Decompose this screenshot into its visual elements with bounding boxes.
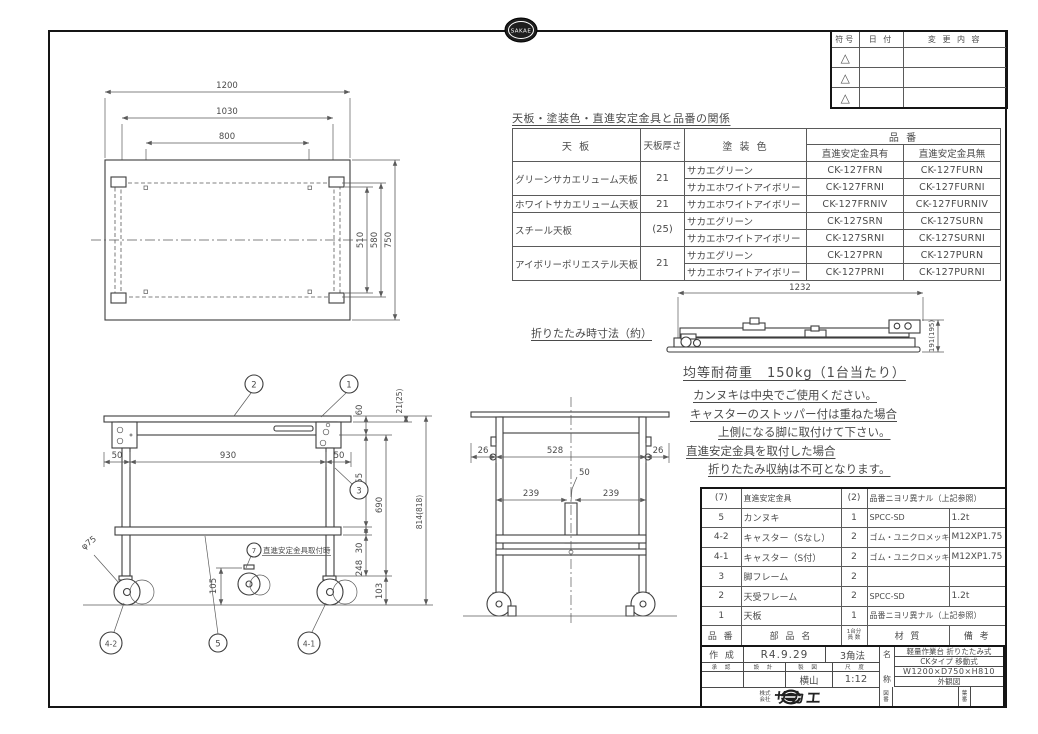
drawing-number-label: 図番 (880, 687, 893, 706)
revision-triangle-icon: △ (831, 68, 859, 88)
dim-50-slot: 50 (579, 468, 590, 478)
dim-26-left: 26 (478, 446, 489, 456)
sakae-emblem: SAKAE (502, 16, 540, 46)
product-size-line: W1200×D750×H810 (895, 667, 1003, 677)
dim-814-818: 814(818) (415, 495, 424, 530)
svg-text:2: 2 (251, 381, 256, 391)
balloon-3: 3 (335, 468, 368, 499)
note-line: 直進安定金具を取付した場合 (686, 442, 1013, 461)
drawing-scale: 1:12 (833, 672, 880, 687)
dim-239-right: 239 (603, 489, 619, 499)
col-without-bracket: 直進安定金具無 (904, 145, 1001, 162)
created-label: 作 成 (702, 647, 744, 663)
svg-text:7: 7 (252, 547, 256, 555)
part-number-relation-table: 天 板 天板厚さ 塗 装 色 品 番 直進安定金具有 直進安定金具無 グリーンサ… (512, 128, 1001, 281)
table-row: (7) 直進安定金具 (2) 品番ニヨリ異ナル（上記参照） (701, 488, 1006, 508)
col-remarks: 備 考 (949, 626, 1006, 646)
company-prefix: 株式 会社 (759, 691, 770, 703)
dim-248: 248 (355, 560, 365, 576)
svg-text:4-1: 4-1 (303, 640, 315, 649)
svg-text:1: 1 (346, 381, 351, 391)
svg-text:3: 3 (356, 487, 361, 497)
sheet-number-label: 葉番 (959, 687, 971, 706)
col-part-name: 部 品 名 (741, 626, 841, 646)
dim-800: 800 (219, 132, 235, 142)
name-label: 名称 (880, 647, 895, 687)
dim-60: 60 (355, 405, 365, 416)
revision-triangle-icon: △ (831, 88, 859, 109)
note-line: キャスターのストッパー付は重ねた場合 (690, 405, 1013, 424)
balloon-4-1: 4-1 (298, 603, 326, 654)
dim-105: 105 (209, 578, 219, 594)
relation-table-title: 天板・塗装色・直進安定金具と品番の関係 (512, 110, 731, 126)
revision-triangle-icon: △ (831, 48, 859, 68)
table-row: 3 脚フレーム 2 (701, 567, 1006, 587)
revision-header: 符号 日 付 変 更 内 容 (831, 31, 1007, 48)
dim-50-left: 50 (112, 451, 123, 461)
col-top: 天 板 (513, 129, 641, 162)
col-color: 塗 装 色 (685, 129, 807, 162)
drafter-name: 横山 (786, 672, 833, 687)
table-row: スチール天板 (25) サカエグリーン CK-127SRN CK-127SURN (513, 213, 1001, 230)
col-part-no: 品 番 (701, 626, 741, 646)
table-row: △ (831, 68, 1007, 88)
svg-text:4-2: 4-2 (105, 640, 117, 649)
dim-30: 30 (355, 543, 365, 554)
load-capacity-note: 均等耐荷重 150kg（1台当たり） (683, 362, 1013, 381)
dim-21-25: 21(25) (395, 388, 404, 413)
note-line: 折りたたみ収納は不可となります。 (708, 460, 1013, 479)
table-row: ホワイトサカエリューム天板 21 サカエホワイトアイボリー CK-127FRNI… (513, 196, 1001, 213)
dim-750: 750 (384, 232, 394, 248)
parts-header: 品 番 部 品 名 1台分 員 数 材 質 備 考 (701, 626, 1006, 646)
dim-239-left: 239 (523, 489, 539, 499)
balloon-1: 1 (321, 375, 358, 417)
top-view-drawing: 1200 1030 800 510 580 750 (55, 72, 400, 337)
company-name: サカエ (772, 687, 822, 706)
table-row: 2 天受フレーム 2 SPCC-SD 1.2t (701, 586, 1006, 606)
drawing-notes: 均等耐荷重 150kg（1台当たり） カンヌキは中央でご使用ください。 キャスタ… (683, 362, 1013, 479)
dim-caster-diameter: φ75 (80, 534, 99, 552)
table-row: 4-1 キャスター（S付） 2 ゴム・ユニクロメッキ M12XP1.75 (701, 547, 1006, 567)
revision-table: 符号 日 付 変 更 内 容 △ △ △ (830, 30, 1008, 109)
rev-col-date: 日 付 (859, 31, 903, 48)
rev-col-change: 変 更 内 容 (903, 31, 1007, 48)
emblem-text: SAKAE (511, 29, 532, 35)
table-row: △ (831, 88, 1007, 109)
table-row: アイボリーポリエステル天板 21 サカエグリーン CK-127PRN CK-12… (513, 247, 1001, 264)
table-row: グリーンサカエリューム天板 21 サカエグリーン CK-127FRN CK-12… (513, 162, 1001, 179)
dim-930: 930 (220, 451, 236, 461)
dim-510: 510 (356, 232, 366, 248)
workbench-side-outline (463, 412, 677, 616)
dim-690: 690 (375, 497, 385, 513)
rev-col-sign: 符号 (831, 31, 859, 48)
dim-1200: 1200 (216, 81, 238, 91)
approve-label: 承 認 (702, 663, 744, 672)
col-qty: 1台分 員 数 (841, 626, 867, 646)
col-material: 材 質 (867, 626, 949, 646)
dim-1030: 1030 (216, 107, 238, 117)
table-row: △ (831, 48, 1007, 68)
title-block: 作 成 R4.9.29 3角法 承 認 設 計 製 図 尺 度 横山 1:12 … (700, 645, 1005, 708)
front-view-drawing: 50 930 50 105 φ75 60 455 30 248 690 103 (58, 372, 468, 662)
balloon-4-2: 4-2 (100, 603, 124, 654)
company-logo: 株式 会社 サカエ (702, 687, 880, 706)
product-name-line2: CKタイプ 移動式 (895, 657, 1003, 667)
relation-header-hinban: 天 板 天板厚さ 塗 装 色 品 番 (513, 129, 1001, 145)
col-thickness: 天板厚さ (641, 129, 685, 162)
parts-list-table: (7) 直進安定金具 (2) 品番ニヨリ異ナル（上記参照） 5 カンヌキ 1 S… (700, 487, 1007, 647)
note-line: カンヌキは中央でご使用ください。 (693, 386, 1013, 405)
dim-191-195: 191(195) (928, 320, 936, 352)
drawing-number-value (893, 687, 959, 706)
table-row: 1 天板 1 品番ニヨリ異ナル（上記参照） (701, 606, 1006, 626)
folded-size-label: 折りたたみ時寸法（約） (531, 325, 652, 341)
dim-580: 580 (370, 232, 380, 248)
product-name-line1: 軽量作業台 折りたたみ式 (895, 647, 1003, 657)
svg-text:5: 5 (215, 640, 220, 650)
folded-table-outline (667, 318, 920, 352)
balloon-2: 2 (234, 375, 263, 416)
dim-50-right: 50 (334, 451, 345, 461)
dim-26-right: 26 (653, 446, 664, 456)
draft-label: 製 図 (786, 663, 833, 672)
dim-103: 103 (375, 583, 385, 599)
drawing-type-line: 外観図 (895, 677, 1003, 687)
col-hinban: 品 番 (807, 129, 1001, 145)
design-label: 設 計 (744, 663, 786, 672)
note-line: 上側になる脚に取付けて下さい。 (718, 423, 1013, 442)
drawing-sheet: SAKAE 符号 日 付 変 更 内 容 △ △ △ 天板・塗装色・直進安定金具… (0, 0, 1038, 734)
balloon-7-anchor-note: 7 直進安定金具取付時 (246, 543, 331, 568)
side-view-drawing: 26 528 26 50 239 239 (455, 385, 685, 630)
dim-1232: 1232 (789, 283, 811, 293)
created-date: R4.9.29 (744, 647, 826, 663)
folded-view-drawing: 1232 191(195) (653, 283, 953, 373)
col-with-bracket: 直進安定金具有 (807, 145, 904, 162)
projection-method: 3角法 (826, 647, 880, 663)
sheet-number-value (971, 687, 1003, 706)
anchor-note-text: 直進安定金具取付時 (263, 545, 331, 555)
scale-label: 尺 度 (833, 663, 880, 672)
table-row: 4-2 キャスター（Sなし） 2 ゴム・ユニクロメッキ M12XP1.75 (701, 528, 1006, 548)
dim-528: 528 (547, 446, 563, 456)
table-row: 5 カンヌキ 1 SPCC-SD 1.2t (701, 508, 1006, 528)
